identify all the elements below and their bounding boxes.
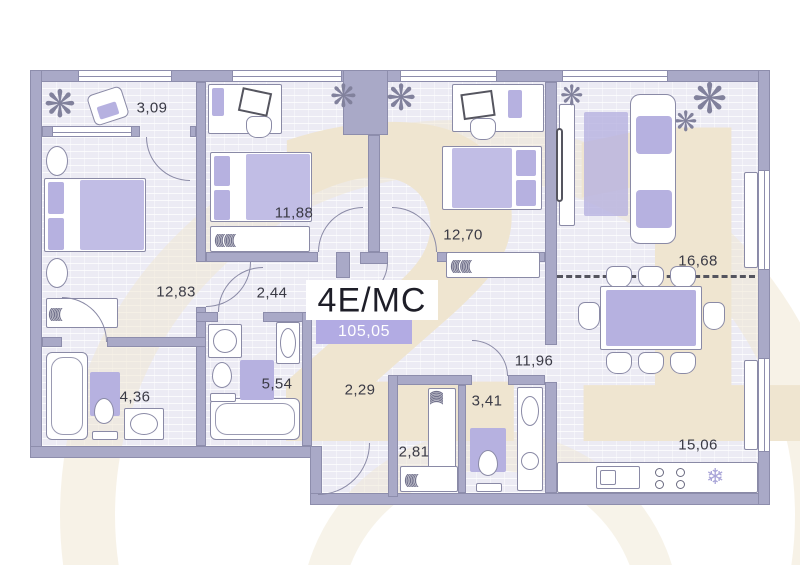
toilet-icon: [210, 362, 236, 402]
wall-ensuite-top-b: [107, 337, 206, 347]
dining-table-top: [606, 290, 696, 346]
sink-icon: [280, 328, 296, 358]
plant-icon: ❋: [386, 80, 416, 116]
wall-bath-separator: [196, 307, 206, 446]
bed-pillow: [214, 190, 230, 220]
wall-ensuite-top-a: [42, 337, 62, 347]
bed-pillow: [516, 150, 536, 176]
dining-chair-icon: [606, 266, 632, 288]
window-sill: [744, 360, 758, 450]
sink-icon: [521, 396, 539, 426]
sink-icon: [213, 329, 237, 353]
plant-icon: ❋: [674, 108, 697, 136]
desk-chair-icon: [246, 116, 272, 138]
wall-bottom-left: [30, 446, 322, 458]
wall-bath2-right: [302, 312, 312, 446]
nightstand-icon: [46, 146, 68, 176]
wall-wc-top: [508, 375, 545, 385]
wall-closet-top: [388, 375, 472, 385]
monitor-icon: [460, 90, 495, 120]
bed-blanket: [80, 180, 144, 250]
area-label-dining: 15,06: [678, 437, 718, 454]
window-top-1: [78, 70, 172, 82]
dining-chair-icon: [703, 302, 725, 330]
dining-chair-icon: [670, 352, 696, 374]
wall-bottom: [310, 493, 770, 505]
wardrobe-hatch: ((((( ((((((: [214, 231, 308, 247]
wardrobe-hatch: ((((( ((((((: [450, 257, 538, 273]
nightstand-icon: [46, 258, 68, 288]
wall-bedrooms-divider: [368, 135, 380, 252]
window-top-2: [232, 70, 342, 82]
bathtub-icon: [210, 398, 300, 440]
stove-icon: [652, 467, 688, 489]
window-balcony: [52, 126, 132, 137]
wall-bedroom1-right: [196, 82, 206, 262]
wall-hall-stub: [336, 252, 350, 278]
bed-blanket: [452, 148, 512, 208]
bed-pillow: [516, 180, 536, 206]
wall-closet-wc-divider: [458, 385, 466, 493]
area-label-living-room: 16,68: [678, 253, 718, 270]
area-label-wc: 3,41: [472, 393, 503, 410]
pc-tower-icon: [508, 90, 522, 118]
dining-chair-icon: [606, 352, 632, 374]
plant-icon: ❋: [330, 80, 357, 112]
dining-chair-icon: [638, 266, 664, 288]
dining-chair-icon: [638, 352, 664, 374]
area-label-balcony: 3,09: [137, 100, 168, 117]
total-area-badge: 105,05: [316, 320, 412, 344]
area-label-corridor: 2,29: [345, 382, 376, 399]
wall-bedroom2-bottom: [206, 252, 318, 262]
bathtub-icon: [46, 352, 88, 440]
wall-closet-left: [388, 375, 398, 497]
plant-icon: ❋: [560, 82, 583, 110]
fridge-icon: ❄: [706, 466, 724, 488]
window-right-2: [758, 358, 770, 452]
bed-pillow: [48, 182, 64, 214]
area-label-kitchen: 11,96: [515, 353, 553, 370]
area-label-closet: 2,81: [399, 444, 430, 461]
floor-plan: 21 ❋ ((: [0, 0, 800, 565]
sofa-cushion: [636, 116, 672, 154]
desk-chair-icon: [470, 118, 496, 140]
bed-pillow: [48, 218, 64, 250]
washer-drum-icon: [521, 452, 539, 470]
wall-bath2-top-a: [196, 312, 218, 322]
wardrobe-hatch: (((((((: [48, 305, 116, 321]
wall-living-left: [545, 82, 557, 345]
toilet-icon: [92, 398, 118, 440]
plan-title: 4Е/МС: [318, 282, 427, 321]
tv-icon: [556, 128, 563, 202]
area-label-hallway: 2,44: [257, 285, 288, 302]
area-label-bathroom-master: 4,36: [120, 389, 151, 406]
toilet-icon: [476, 450, 502, 492]
closet-hatch: (((((((: [404, 471, 456, 487]
bed-pillow: [214, 156, 230, 186]
area-label-bathroom: 5,54: [262, 376, 293, 393]
area-label-bedroom-master: 12,83: [156, 284, 196, 301]
dining-chair-icon: [578, 302, 600, 330]
plant-icon: ❋: [44, 86, 76, 124]
kitchen-sink-basin: [600, 470, 616, 485]
wall-kitchen-left: [545, 382, 557, 493]
wall-left: [30, 70, 42, 458]
pc-tower-icon: [212, 88, 224, 116]
sink-icon: [130, 413, 158, 435]
window-sill: [744, 172, 758, 268]
sofa-cushion: [636, 190, 672, 228]
closet-hatch: (((((((: [430, 390, 446, 466]
window-right-1: [758, 170, 770, 270]
area-label-bedroom-3: 12,70: [443, 227, 483, 244]
area-label-bedroom-2: 11,88: [275, 205, 313, 222]
rug-icon: [584, 112, 628, 216]
